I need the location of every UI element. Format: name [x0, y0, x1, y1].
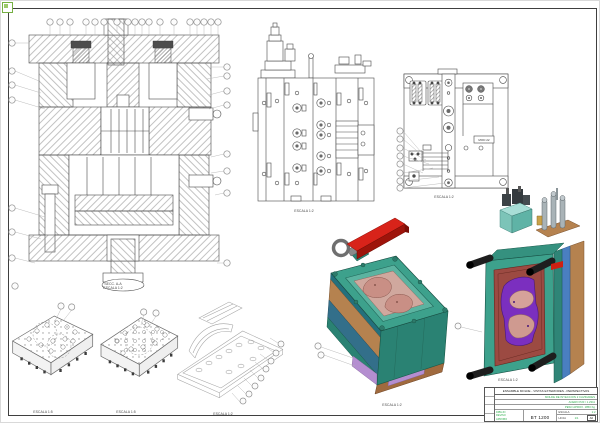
mold-section-drawing: [29, 19, 221, 291]
mold-3d-front: [327, 218, 448, 394]
revision-strip: [485, 388, 495, 421]
caption-iso-front: ESCALA 1:2: [382, 403, 401, 407]
iso-render-rear: [456, 186, 600, 391]
caption-plan-view: ESCALA 1:2: [434, 195, 453, 199]
lifting-hook-ring: [334, 241, 349, 256]
sheet-cell: HOJA 1/1 A0: [557, 415, 597, 421]
plate-b: [101, 309, 178, 376]
plates-isometric-view: [5, 301, 191, 421]
drawing-number: BT 1200: [524, 410, 557, 421]
section-view: [11, 7, 236, 299]
drawing-sheet: MOD 22: [0, 0, 600, 423]
guide-pillars: [536, 188, 580, 237]
iso-render-front: [297, 206, 467, 416]
caption-plate-b: ESCALA 1:5: [116, 410, 135, 414]
plan-view: MOD 22: [393, 53, 513, 203]
caption-section-view: SECC. A-AESCALA 1:2: [103, 282, 122, 290]
title-block: ENSAMBLE MOLDE - VISTAS EXTERIORES - PER…: [484, 387, 598, 422]
wireframe-drawing: [178, 302, 283, 398]
signature-rows: DIBUJO REVISO APROBO: [495, 410, 524, 421]
plate-a: [13, 303, 93, 375]
nameplate-text: MOD 22: [478, 138, 490, 142]
wireframe-exploded-view: [169, 296, 294, 421]
balloon-callouts: [455, 323, 482, 332]
mold-3d-rear: [466, 186, 584, 383]
sheet-size: A0: [587, 415, 595, 421]
caption-wireframe: ESCALA 1:2: [213, 412, 232, 416]
caption-plate-a: ESCALA 1:5: [33, 410, 52, 414]
side-view: [251, 13, 381, 213]
caption-side-view: ESCALA 1:2: [294, 209, 313, 213]
drawing-title: ENSAMBLE MOLDE - VISTAS EXTERIORES - PER…: [495, 388, 597, 395]
hot-runner-connector-box: [500, 186, 532, 233]
caption-iso-rear: ESCALA 1:2: [498, 378, 517, 382]
side-view-drawing: [253, 23, 374, 201]
